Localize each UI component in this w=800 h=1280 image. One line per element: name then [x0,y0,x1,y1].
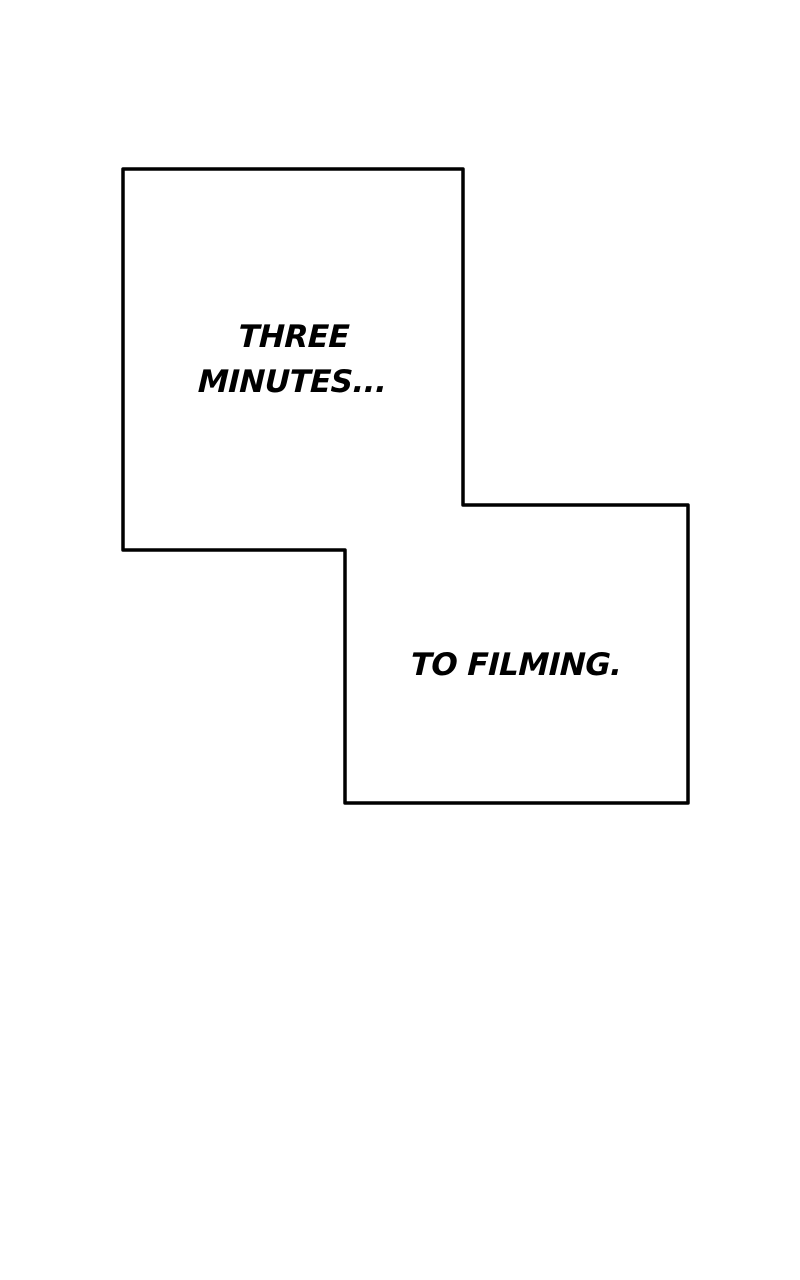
caption-bottom-line: TO FILMING. [410,643,622,687]
caption-box-top: THREE MINUTES... [116,169,469,550]
caption-top-line-1: THREE [238,315,350,359]
caption-box-bottom: TO FILMING. [340,505,693,803]
caption-top-line-2: MINUTES... [197,360,387,404]
comic-page: THREE MINUTES... TO FILMING. [0,0,800,1280]
